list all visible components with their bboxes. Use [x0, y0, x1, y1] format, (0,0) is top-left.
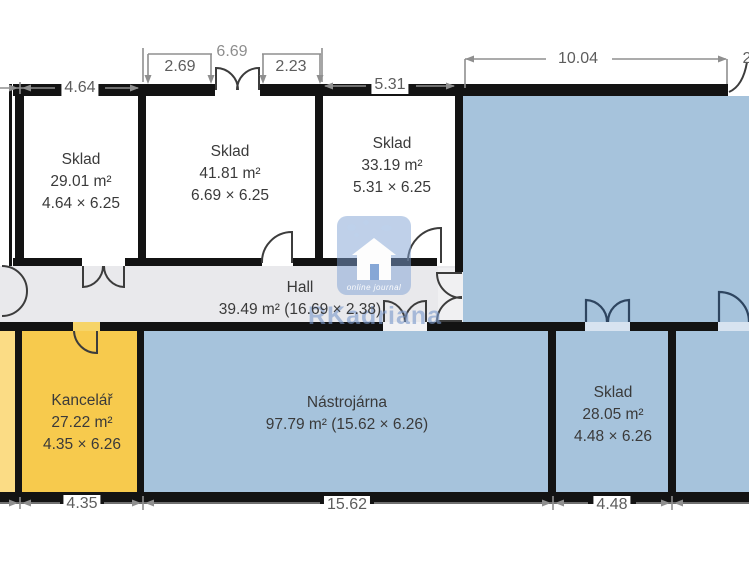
dimension-arrow	[260, 75, 324, 84]
dimension-label: 6.69	[213, 43, 250, 61]
room-area: 33.19 m²	[353, 155, 431, 177]
room-area: 27.22 m²	[43, 412, 121, 434]
side-room-sliver-fill	[0, 331, 15, 492]
wall	[9, 84, 12, 266]
room-area: 29.01 m²	[42, 171, 120, 193]
wall	[15, 322, 22, 492]
floor-plan: online journal RKadriana Sklad 29.01 m² …	[0, 0, 749, 562]
room-dims: 5.31 × 6.25	[353, 177, 431, 199]
room-label-sklad-1: Sklad 29.01 m² 4.64 × 6.25	[42, 149, 120, 215]
dimension-label: 4.35	[63, 495, 100, 513]
dimension-label: 10.04	[555, 50, 601, 68]
door-opening	[73, 322, 100, 331]
door-opening	[82, 258, 125, 266]
room-name: Sklad	[353, 133, 431, 155]
room-area: 41.81 m²	[191, 163, 269, 185]
room-label-nastrojarna: Nástrojárna 97.79 m² (15.62 × 6.26)	[266, 392, 428, 436]
room-name: Sklad	[191, 141, 269, 163]
wall	[138, 84, 146, 266]
room-dims: 4.48 × 6.26	[574, 426, 652, 448]
dimension-label: 2.69	[161, 58, 198, 76]
room-area: 28.05 m²	[574, 404, 652, 426]
room-name: Sklad	[574, 382, 652, 404]
room-label-kancelar: Kancelář 27.22 m² 4.35 × 6.26	[43, 390, 121, 456]
dimension-label: 2.23	[272, 58, 309, 76]
wall	[137, 322, 144, 492]
door-opening	[718, 322, 749, 331]
dimension-label: 5.31	[371, 76, 408, 94]
room-name: Kancelář	[43, 390, 121, 412]
dimension-label: 2	[740, 50, 749, 68]
room-name: Nástrojárna	[266, 392, 428, 414]
dimension-label: 15.62	[324, 496, 370, 514]
room-area: 97.79 m² (15.62 × 6.26)	[266, 414, 428, 436]
room-label-sklad-4: Sklad 28.05 m² 4.48 × 6.26	[574, 382, 652, 448]
wall	[0, 322, 749, 331]
room-area: 39.49 m² (16.69 × 2.38)	[219, 299, 381, 321]
wall	[15, 84, 24, 266]
door-opening	[437, 258, 455, 266]
room-name: Sklad	[42, 149, 120, 171]
room-dims: 6.69 × 6.25	[191, 185, 269, 207]
wall	[668, 322, 676, 492]
wall	[315, 84, 323, 266]
wall	[548, 322, 556, 492]
large-storage-fill	[463, 96, 749, 322]
dimension-arrow	[145, 75, 215, 84]
room-dims: 4.35 × 6.26	[43, 434, 121, 456]
room-label-hall: Hall 39.49 m² (16.69 × 2.38)	[219, 277, 381, 321]
door-opening	[383, 322, 427, 331]
door-opening	[585, 322, 630, 331]
dimension-label: 4.64	[61, 79, 98, 97]
wall	[13, 258, 460, 266]
room-label-sklad-3: Sklad 33.19 m² 5.31 × 6.25	[353, 133, 431, 199]
room-label-sklad-2: Sklad 41.81 m² 6.69 × 6.25	[191, 141, 269, 207]
door-opening	[262, 258, 293, 266]
right-room-fill	[676, 331, 749, 492]
dimension-label: 4.48	[593, 496, 630, 514]
door-arc	[408, 228, 441, 263]
room-name: Hall	[219, 277, 381, 299]
room-dims: 4.64 × 6.25	[42, 193, 120, 215]
